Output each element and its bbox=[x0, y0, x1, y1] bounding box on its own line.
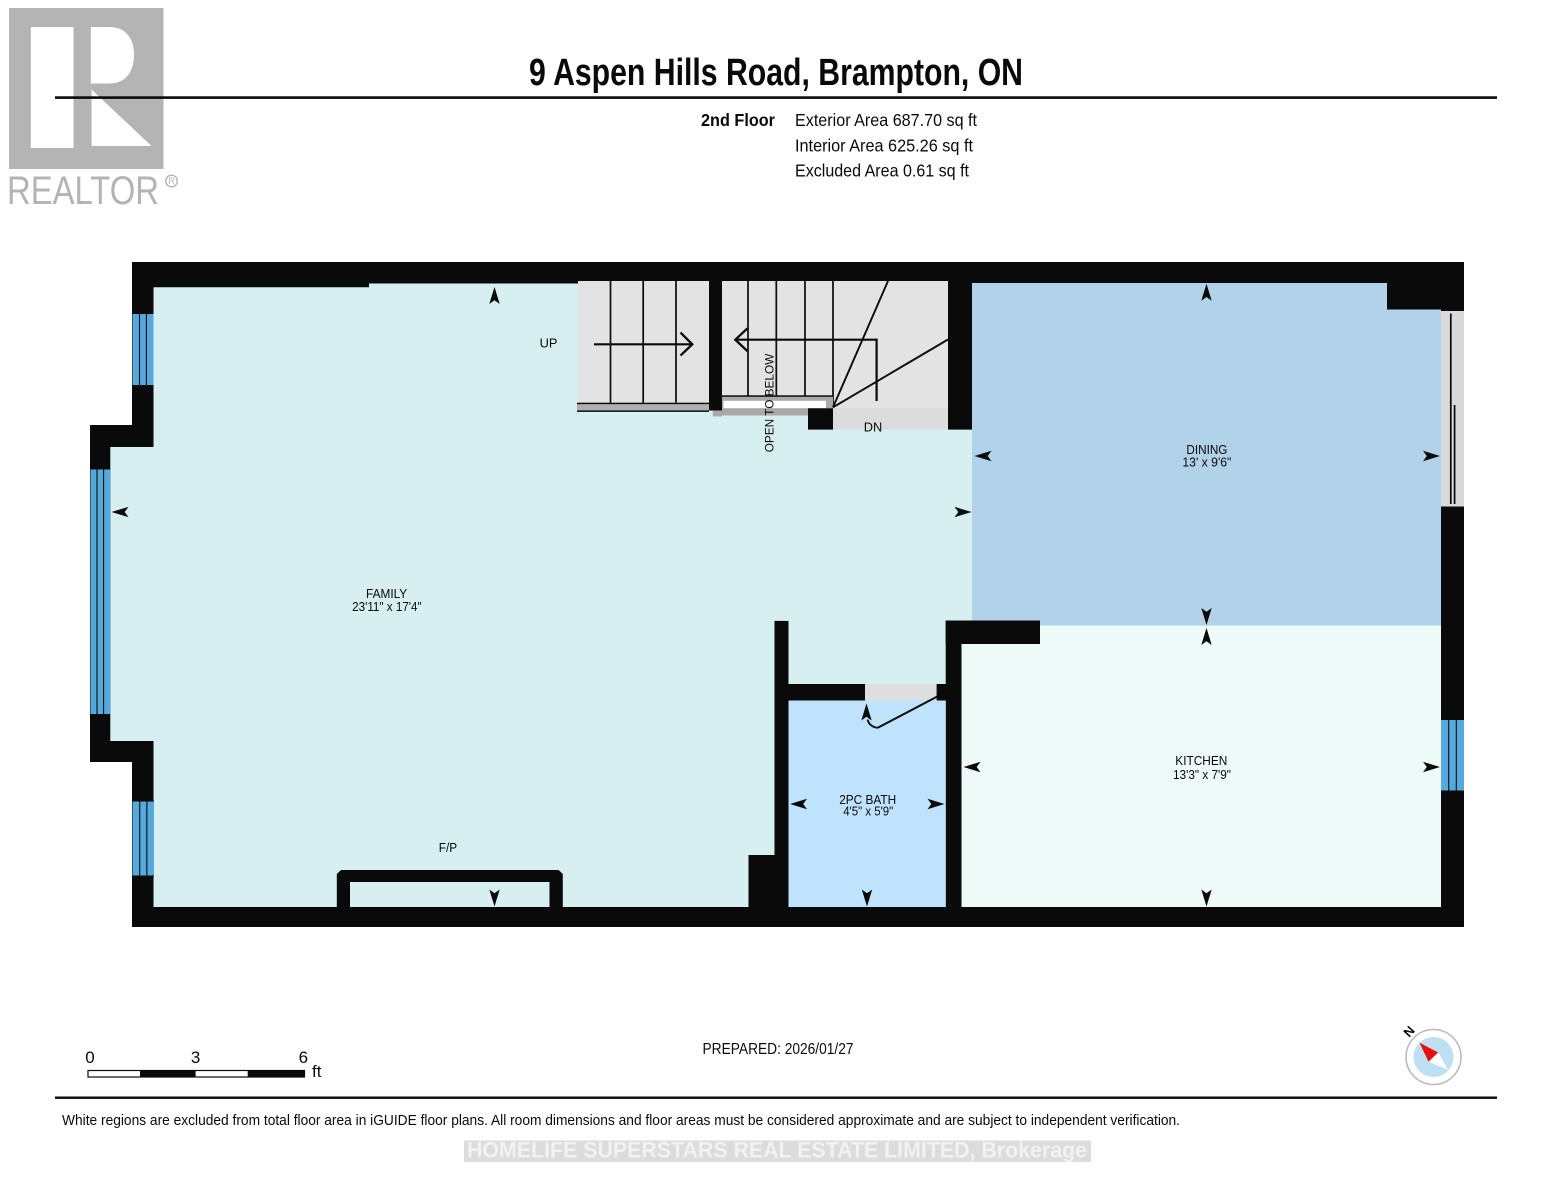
svg-text:R: R bbox=[168, 176, 175, 186]
svg-text:4'5" x 5'9": 4'5" x 5'9" bbox=[843, 805, 893, 819]
svg-text:13' x 9'6": 13' x 9'6" bbox=[1182, 456, 1231, 470]
svg-text:Excluded Area 0.61 sq ft: Excluded Area 0.61 sq ft bbox=[795, 161, 969, 181]
svg-text:0: 0 bbox=[85, 1048, 94, 1067]
svg-text:3: 3 bbox=[191, 1048, 200, 1067]
svg-text:F/P: F/P bbox=[439, 841, 457, 855]
svg-text:Interior Area 625.26 sq ft: Interior Area 625.26 sq ft bbox=[795, 135, 973, 155]
svg-text:2nd Floor: 2nd Floor bbox=[701, 110, 775, 130]
svg-text:Exterior Area 687.70 sq ft: Exterior Area 687.70 sq ft bbox=[795, 110, 977, 130]
svg-text:REALTOR: REALTOR bbox=[7, 169, 159, 213]
svg-text:ft: ft bbox=[312, 1062, 322, 1081]
svg-text:6: 6 bbox=[299, 1048, 308, 1067]
svg-text:DINING: DINING bbox=[1186, 443, 1227, 457]
svg-text:OPEN TO BELOW: OPEN TO BELOW bbox=[763, 353, 777, 452]
svg-text:UP: UP bbox=[540, 336, 558, 351]
svg-text:HOMELIFE SUPERSTARS REAL ESTAT: HOMELIFE SUPERSTARS REAL ESTATE LIMITED,… bbox=[467, 1138, 1087, 1163]
svg-text:White regions are excluded fro: White regions are excluded from total fl… bbox=[62, 1112, 1180, 1129]
svg-text:KITCHEN: KITCHEN bbox=[1175, 754, 1227, 768]
svg-text:9 Aspen Hills Road, Brampton,: 9 Aspen Hills Road, Brampton, ON bbox=[529, 52, 1023, 94]
svg-text:DN: DN bbox=[864, 420, 882, 435]
svg-text:PREPARED: 2026/01/27: PREPARED: 2026/01/27 bbox=[703, 1041, 854, 1058]
svg-text:13'3" x 7'9": 13'3" x 7'9" bbox=[1173, 768, 1231, 782]
svg-text:23'11" x 17'4": 23'11" x 17'4" bbox=[352, 600, 422, 614]
